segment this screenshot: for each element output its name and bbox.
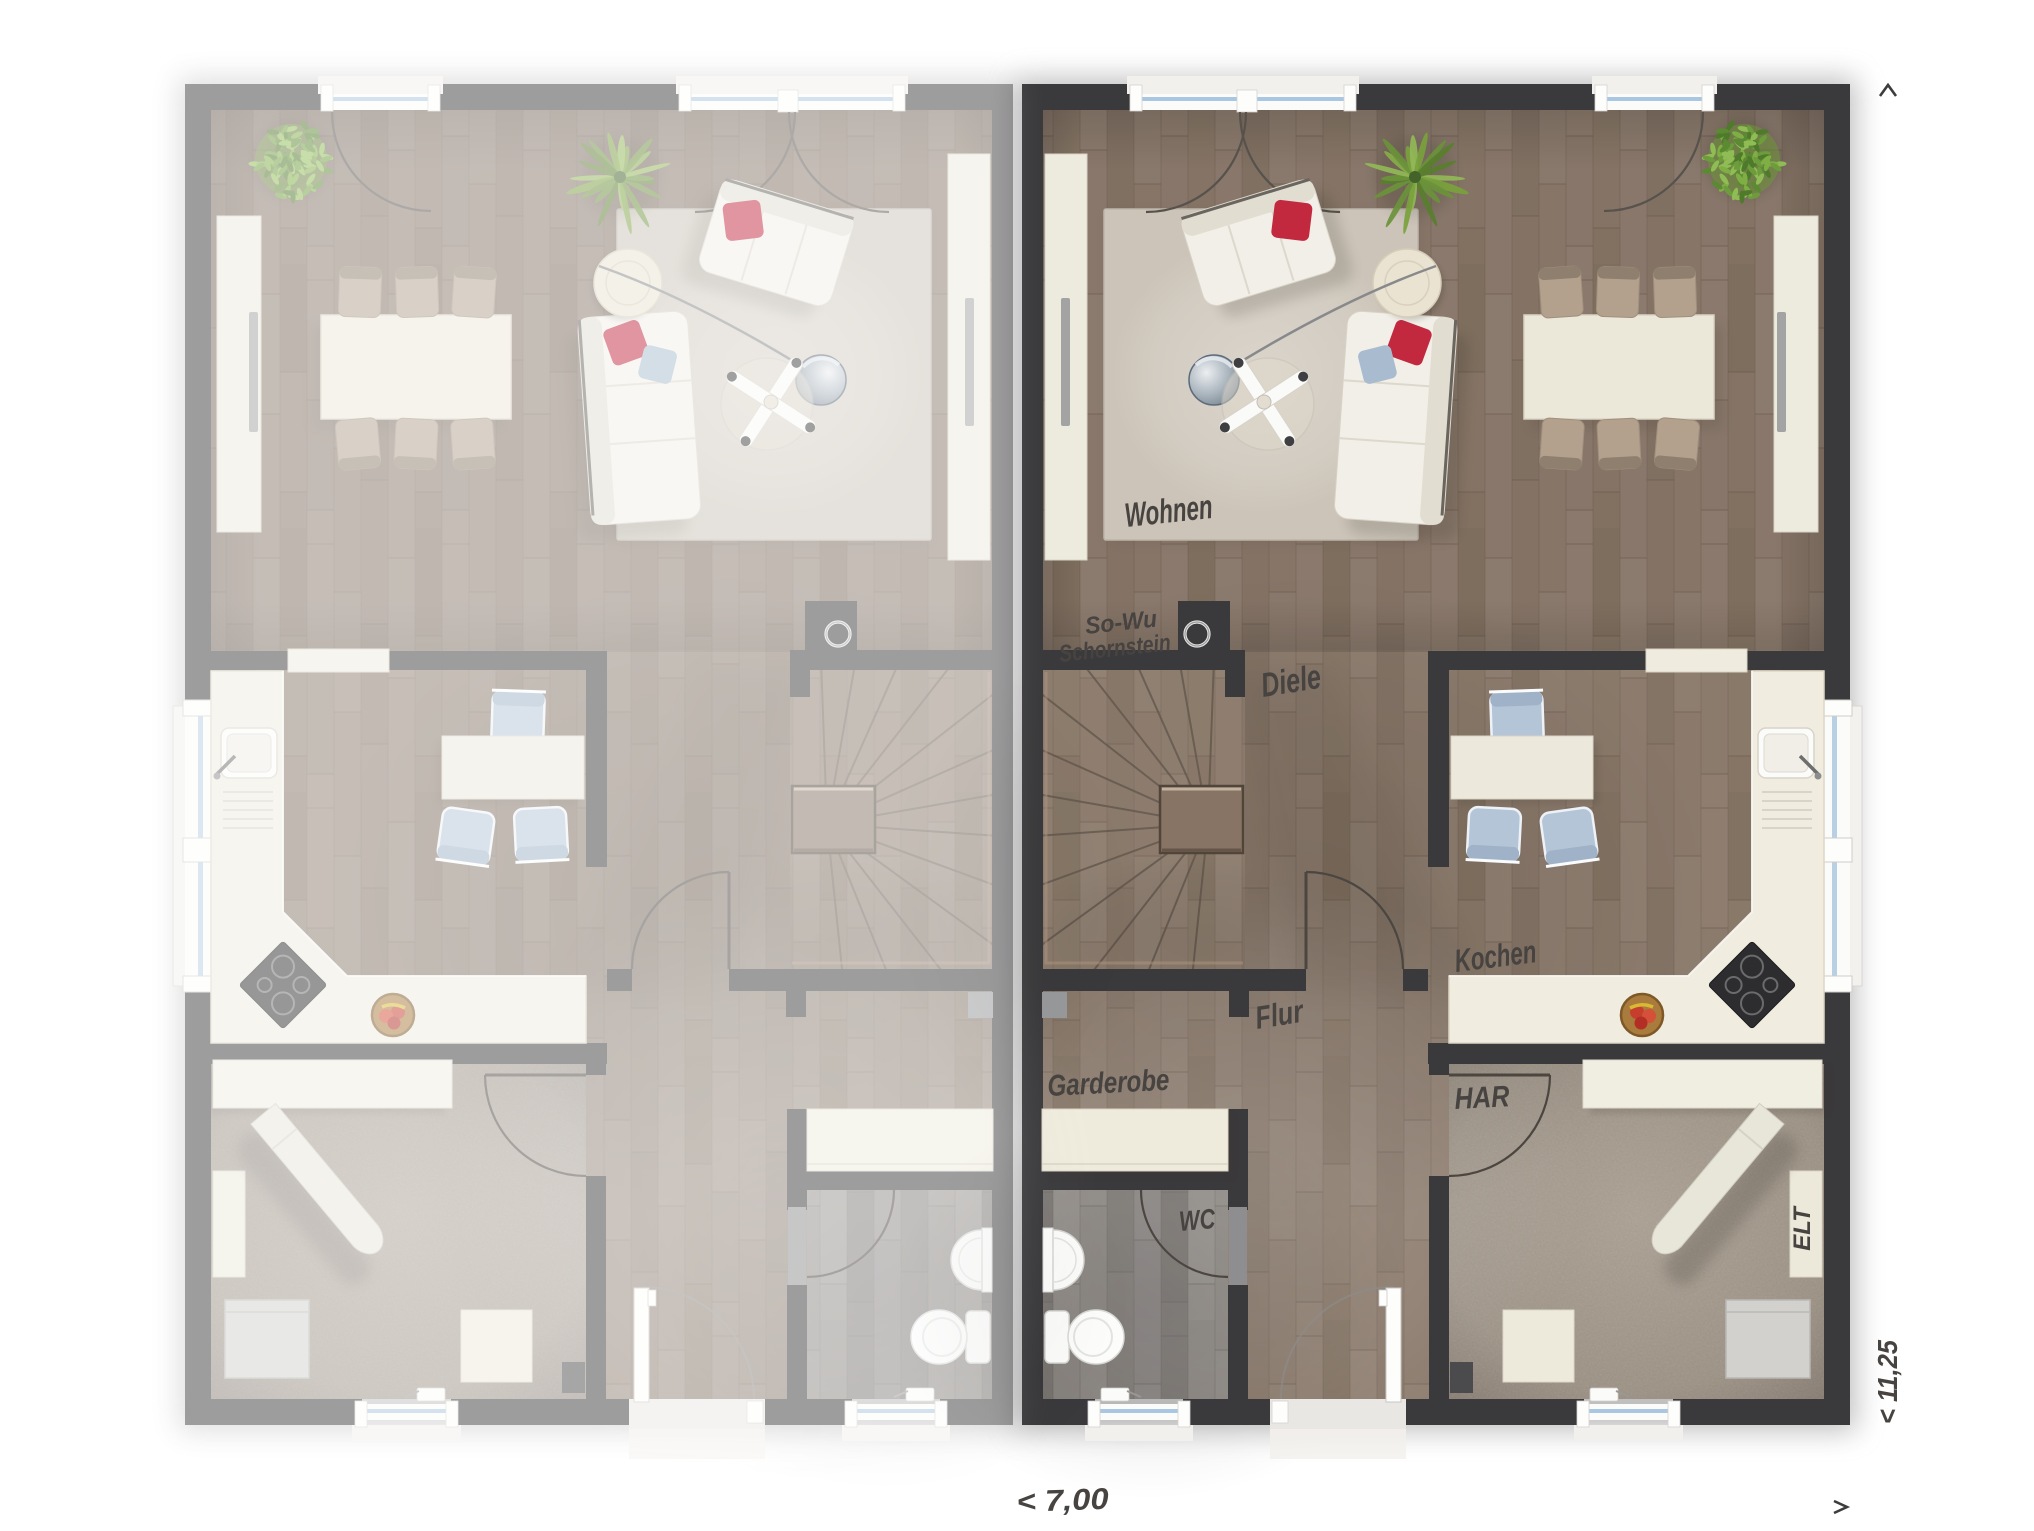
svg-text:HAR: HAR [1454, 1080, 1511, 1116]
svg-text:Flur: Flur [1252, 993, 1306, 1036]
svg-text:ELT: ELT [1789, 1205, 1816, 1251]
svg-text:Garderobe: Garderobe [1047, 1064, 1171, 1103]
svg-text:WC: WC [1178, 1203, 1217, 1237]
svg-text:< 11,25: < 11,25 [1872, 1340, 1903, 1424]
svg-text:< 7,00: < 7,00 [1016, 1483, 1109, 1519]
